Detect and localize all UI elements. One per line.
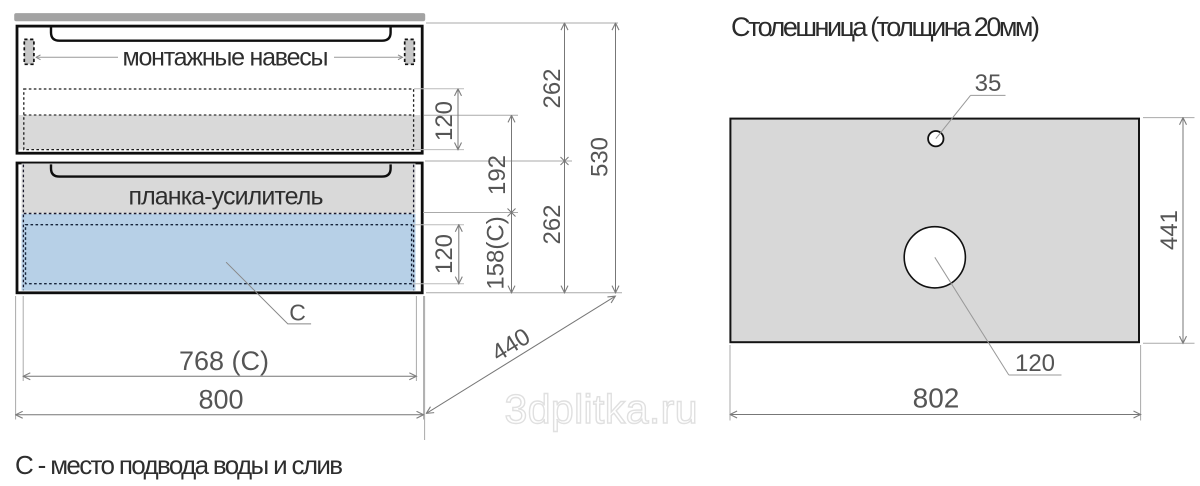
svg-text:192: 192 [484, 155, 511, 195]
svg-text:120: 120 [431, 101, 458, 141]
svg-text:441: 441 [1156, 210, 1183, 250]
svg-text:монтажные навесы: монтажные навесы [123, 44, 329, 72]
svg-text:С: С [289, 300, 306, 326]
svg-text:262: 262 [539, 68, 566, 108]
svg-text:440: 440 [487, 323, 535, 367]
svg-text:158(С): 158(С) [483, 216, 510, 289]
svg-text:530: 530 [587, 137, 614, 177]
svg-text:800: 800 [198, 385, 243, 415]
svg-text:35: 35 [975, 70, 1002, 97]
svg-text:120: 120 [431, 234, 458, 274]
svg-text:планка-усилитель: планка-усилитель [129, 183, 324, 211]
svg-text:802: 802 [913, 383, 960, 414]
svg-text:Столешница (толщина 20мм): Столешница (толщина 20мм) [731, 12, 1040, 42]
svg-text:3dplitka.ru: 3dplitka.ru [505, 386, 698, 432]
svg-text:С - место подвода воды и слив: С - место подвода воды и слив [15, 450, 343, 480]
svg-text:768 (С): 768 (С) [179, 346, 269, 376]
svg-text:120: 120 [1015, 350, 1055, 377]
svg-text:262: 262 [539, 204, 566, 244]
